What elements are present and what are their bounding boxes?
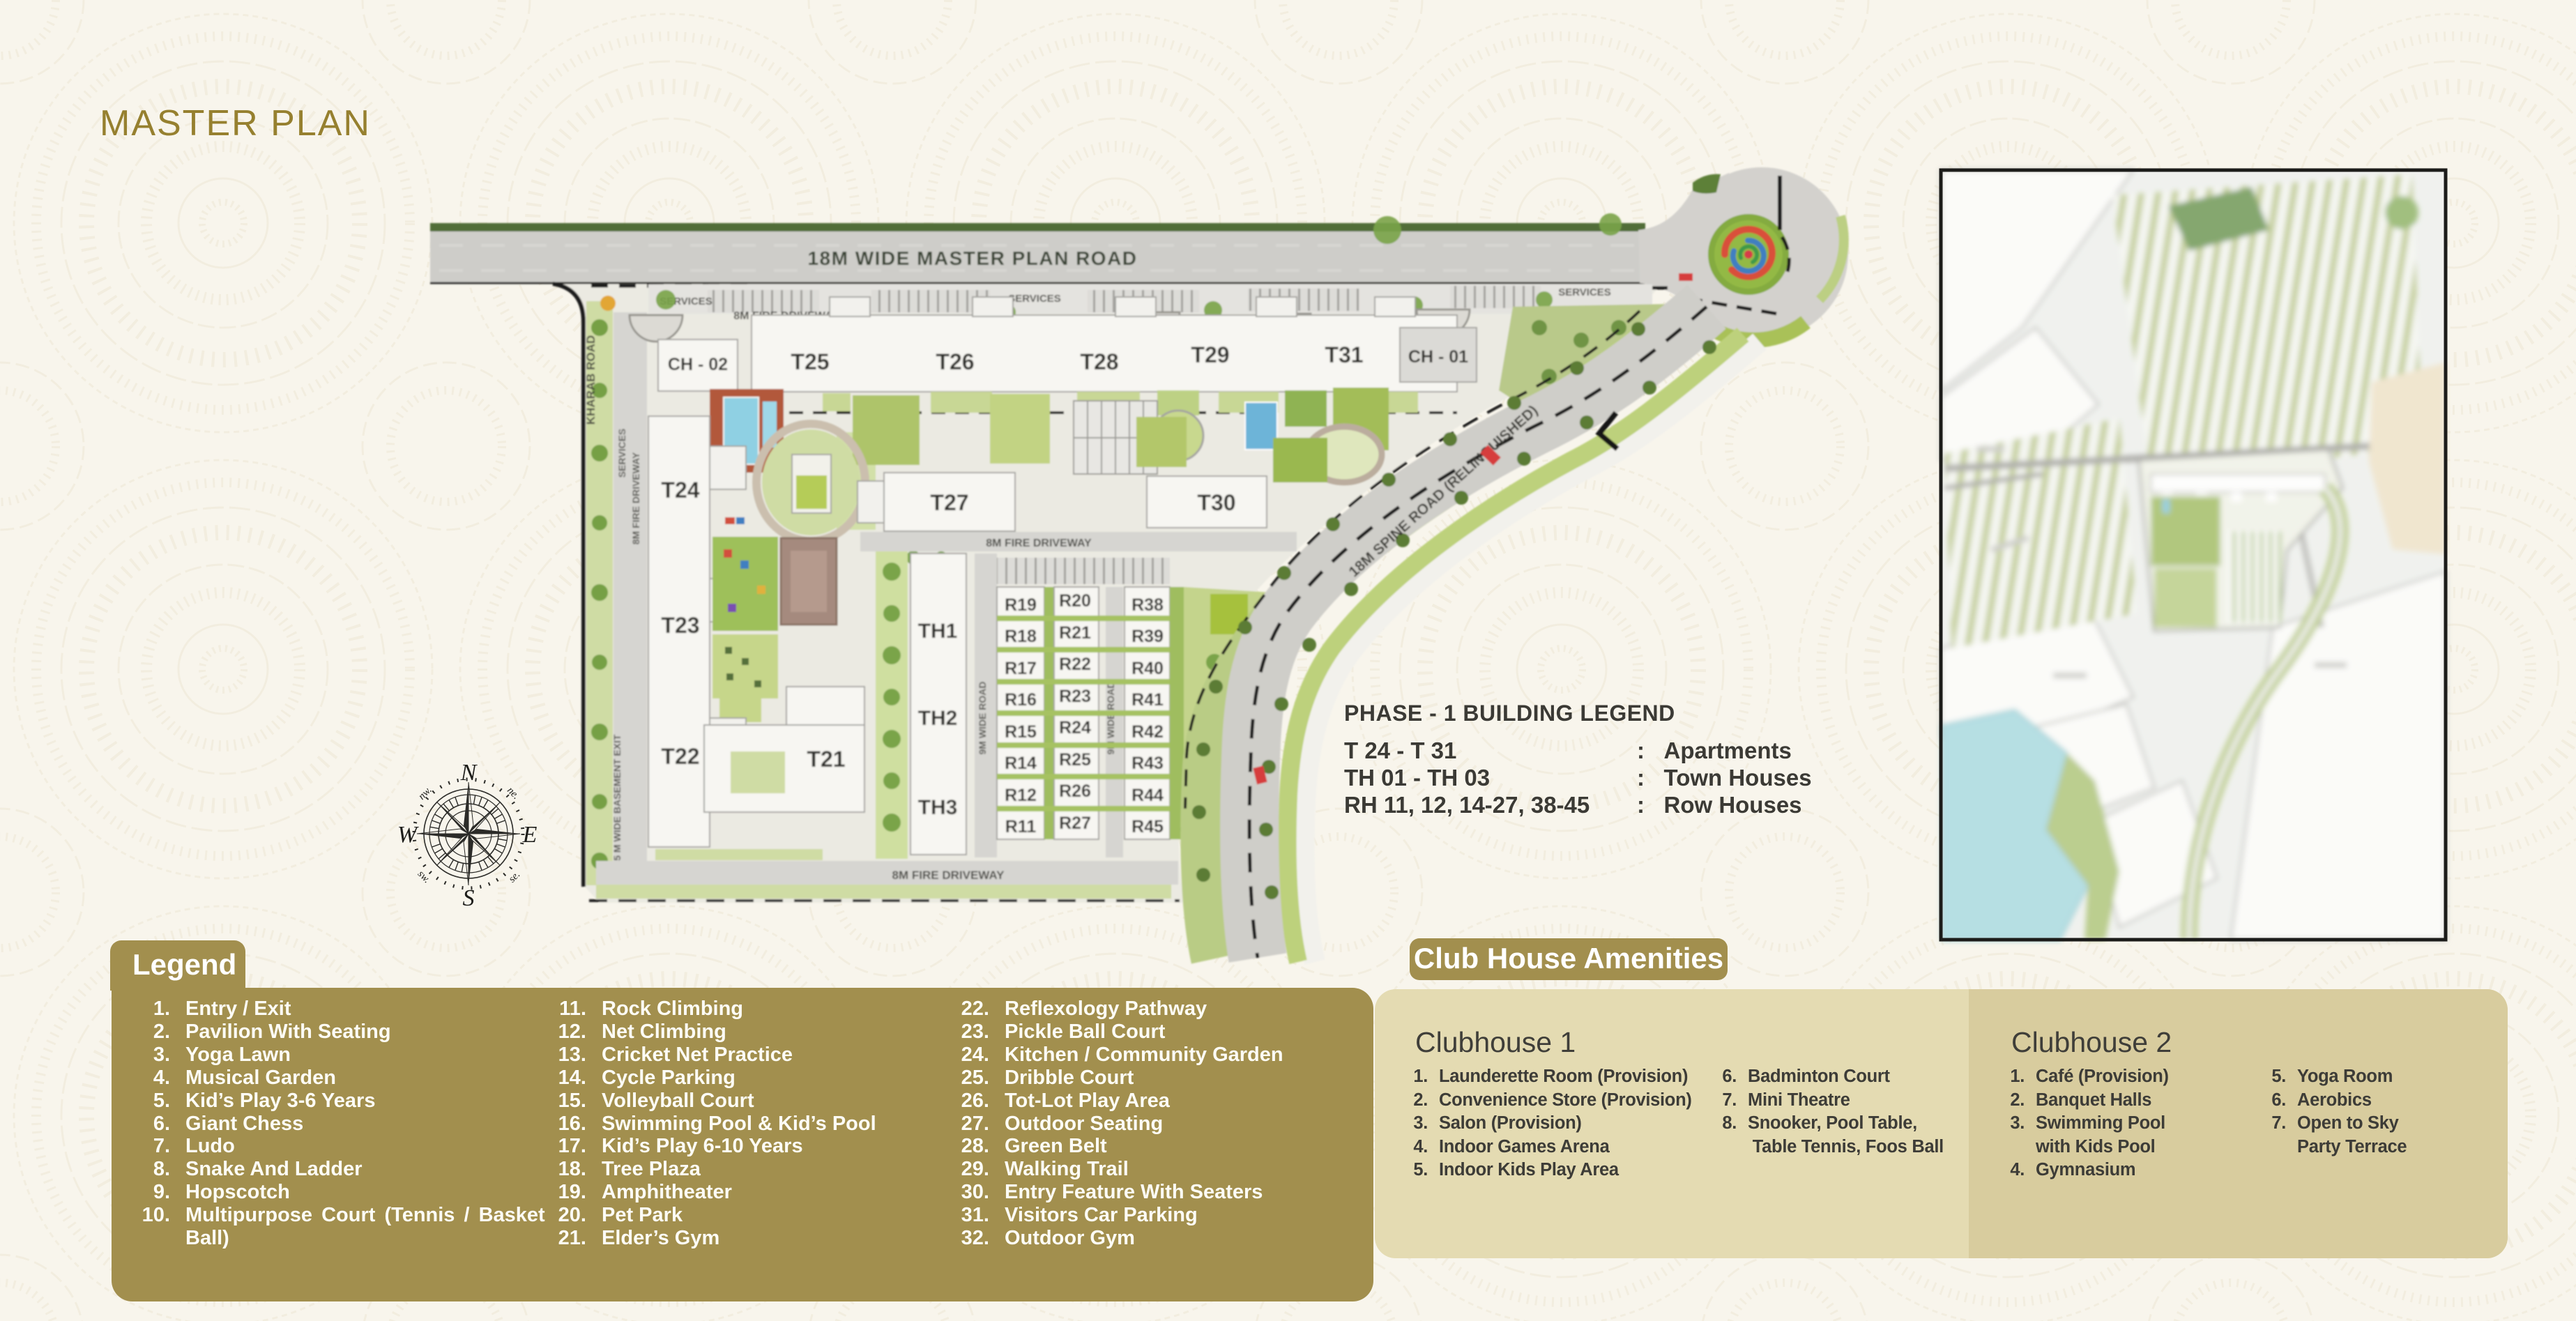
svg-text:TH2: TH2 [918, 707, 958, 730]
svg-text:R19: R19 [1005, 595, 1037, 615]
svg-text:SERVICES: SERVICES [1008, 293, 1061, 305]
svg-text:R18: R18 [1005, 627, 1037, 646]
svg-text:E: E [522, 822, 538, 848]
svg-text:T27: T27 [930, 490, 968, 515]
svg-text:T25: T25 [791, 349, 829, 374]
svg-text:8M FIRE DRIVEWAY: 8M FIRE DRIVEWAY [986, 537, 1092, 549]
svg-text:R21: R21 [1059, 623, 1091, 643]
svg-text:T21: T21 [807, 747, 845, 772]
svg-text:SERVICES: SERVICES [616, 429, 627, 478]
svg-text:T23: T23 [661, 613, 699, 638]
svg-text:R14: R14 [1005, 754, 1037, 773]
svg-text:TH3: TH3 [918, 796, 958, 819]
svg-text:T30: T30 [1197, 490, 1235, 515]
svg-text:8M FIRE DRIVEWAY: 8M FIRE DRIVEWAY [892, 869, 1005, 882]
svg-text:R45: R45 [1131, 817, 1164, 837]
svg-text:4.5 M WIDE BASEMENT EXIT: 4.5 M WIDE BASEMENT EXIT [611, 734, 623, 869]
svg-text:R42: R42 [1131, 722, 1164, 742]
svg-text:W: W [397, 822, 419, 848]
svg-text:R20: R20 [1059, 591, 1091, 611]
svg-text:R12: R12 [1005, 786, 1037, 805]
svg-text:N: N [460, 760, 478, 786]
svg-text:R11: R11 [1005, 817, 1037, 837]
svg-text:SERVICES: SERVICES [1558, 287, 1611, 298]
svg-text:R27: R27 [1059, 814, 1091, 833]
svg-text:R41: R41 [1131, 690, 1164, 710]
svg-text:T22: T22 [661, 744, 699, 769]
svg-text:CH - 01: CH - 01 [1408, 347, 1468, 367]
svg-text:R23: R23 [1059, 687, 1091, 706]
svg-text:18M WIDE MASTER PLAN ROAD: 18M WIDE MASTER PLAN ROAD [807, 247, 1137, 269]
svg-text:R44: R44 [1131, 786, 1164, 805]
svg-text:9M WIDE ROAD: 9M WIDE ROAD [977, 682, 988, 755]
svg-text:T31: T31 [1325, 342, 1363, 367]
svg-text:R24: R24 [1059, 718, 1091, 738]
svg-text:R22: R22 [1059, 655, 1091, 674]
svg-text:T24: T24 [661, 478, 699, 503]
svg-text:R38: R38 [1131, 595, 1164, 615]
svg-text:R25: R25 [1059, 750, 1091, 770]
svg-text:T28: T28 [1080, 349, 1118, 374]
svg-text:R40: R40 [1131, 659, 1164, 678]
svg-text:R43: R43 [1131, 754, 1164, 773]
svg-text:T29: T29 [1191, 342, 1229, 367]
svg-text:R39: R39 [1131, 627, 1164, 646]
svg-text:8M FIRE DRIVEWAY: 8M FIRE DRIVEWAY [630, 452, 641, 544]
svg-text:CH - 02: CH - 02 [668, 355, 728, 374]
svg-text:T26: T26 [936, 349, 974, 374]
svg-text:KHARAB ROAD: KHARAB ROAD [584, 335, 597, 425]
svg-text:S: S [463, 885, 475, 911]
svg-text:R26: R26 [1059, 781, 1091, 801]
svg-text:TH1: TH1 [918, 620, 958, 643]
svg-text:R16: R16 [1005, 690, 1037, 710]
svg-text:R17: R17 [1005, 659, 1037, 678]
svg-text:R15: R15 [1005, 722, 1037, 742]
